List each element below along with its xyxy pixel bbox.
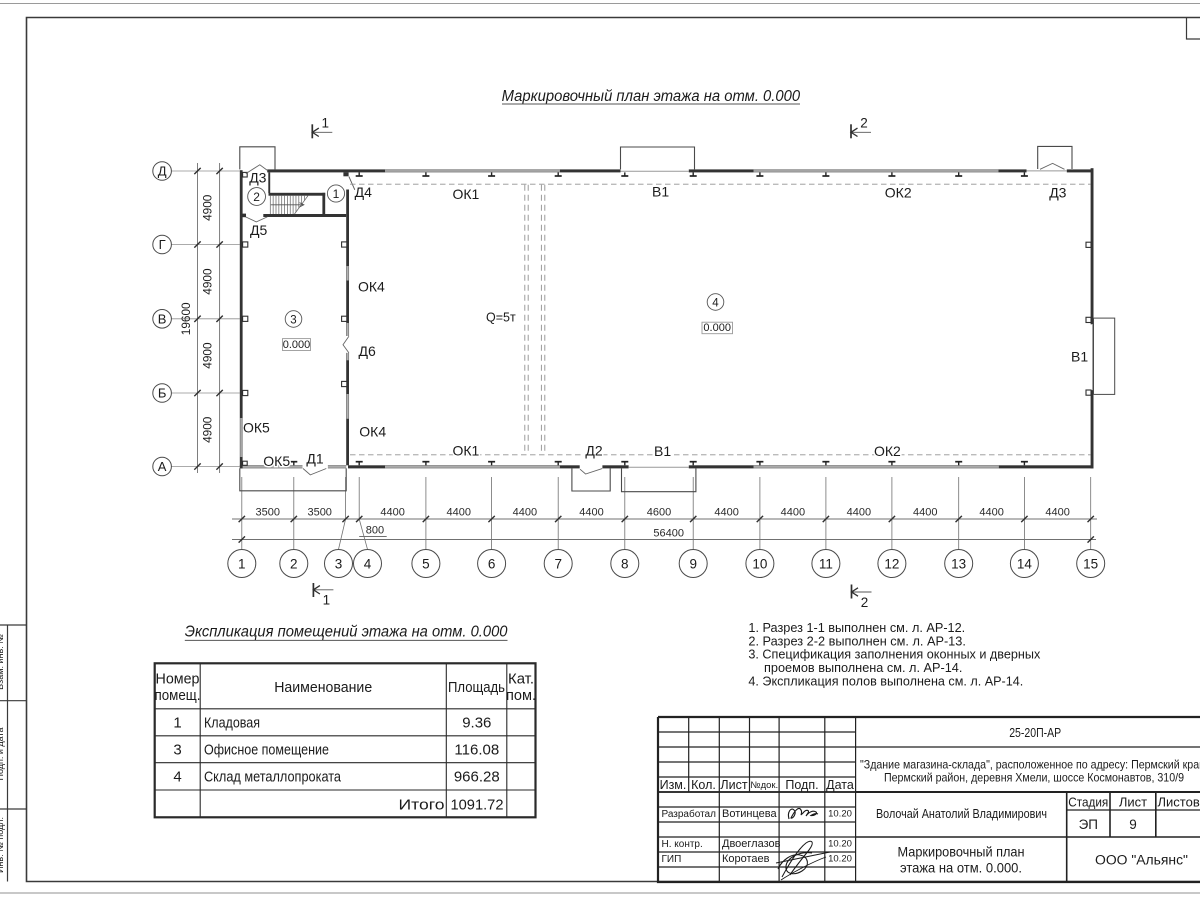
svg-text:Н. контр.: Н. контр. [662, 839, 703, 850]
svg-text:4. Экспликация полов выполнена: 4. Экспликация полов выполнена см. л. АР… [748, 673, 1023, 688]
svg-text:Кат.: Кат. [508, 671, 534, 688]
svg-text:ОК1: ОК1 [453, 186, 480, 202]
svg-text:3: 3 [335, 556, 343, 571]
svg-text:1: 1 [323, 593, 331, 608]
svg-text:Д3: Д3 [249, 170, 266, 186]
svg-text:ОК5: ОК5 [263, 453, 290, 469]
svg-text:Б: Б [158, 386, 167, 401]
svg-text:ОК2: ОК2 [885, 185, 912, 201]
svg-text:ООО "Альянс": ООО "Альянс" [1095, 853, 1188, 868]
svg-text:9: 9 [1129, 817, 1137, 832]
svg-text:Д: Д [158, 164, 167, 179]
svg-text:пом.: пом. [506, 687, 536, 704]
svg-text:1: 1 [238, 556, 246, 571]
svg-text:800: 800 [366, 525, 384, 537]
svg-text:10: 10 [752, 556, 767, 571]
svg-text:7: 7 [554, 556, 562, 571]
svg-text:4: 4 [712, 298, 719, 310]
svg-text:Волочай Анатолий Владимирович: Волочай Анатолий Владимирович [876, 807, 1047, 821]
svg-text:14: 14 [1017, 556, 1033, 571]
svg-text:4900: 4900 [201, 342, 215, 369]
svg-text:3500: 3500 [256, 507, 280, 519]
svg-text:Пермский район, деревня Хмели,: Пермский район, деревня Хмели, шоссе Кос… [884, 771, 1184, 785]
svg-text:0.000: 0.000 [283, 339, 311, 351]
svg-text:1: 1 [173, 715, 181, 732]
svg-text:Лист: Лист [720, 778, 747, 792]
svg-text:12: 12 [884, 556, 899, 571]
svg-text:56400: 56400 [653, 528, 684, 540]
svg-text:Д4: Д4 [355, 184, 372, 200]
svg-text:19600: 19600 [179, 302, 193, 335]
svg-text:4600: 4600 [647, 507, 671, 519]
svg-text:Экспликация помещений этажа на: Экспликация помещений этажа на отм. 0.00… [185, 624, 508, 641]
svg-text:25-20П-АР: 25-20П-АР [1009, 726, 1061, 740]
svg-text:11: 11 [819, 556, 833, 571]
svg-text:"Здание магазина-склада", расп: "Здание магазина-склада", расположенное … [860, 758, 1200, 772]
svg-text:В: В [158, 311, 167, 326]
svg-text:4400: 4400 [1045, 507, 1069, 519]
svg-text:13: 13 [951, 556, 966, 571]
svg-text:Дата: Дата [826, 778, 854, 792]
svg-text:Листов: Листов [1158, 795, 1200, 810]
svg-text:этажа на отм. 0.000.: этажа на отм. 0.000. [900, 860, 1022, 876]
svg-text:4900: 4900 [201, 416, 215, 443]
svg-text:8: 8 [621, 556, 629, 571]
svg-text:0.000: 0.000 [703, 322, 731, 334]
svg-text:Офисное помещение: Офисное помещение [204, 742, 329, 759]
svg-text:4400: 4400 [913, 507, 937, 519]
svg-text:4400: 4400 [781, 507, 805, 519]
svg-text:Кол.: Кол. [691, 778, 716, 792]
svg-text:4400: 4400 [579, 507, 603, 519]
svg-text:ОК5: ОК5 [243, 420, 270, 436]
svg-text:10.20: 10.20 [828, 809, 852, 820]
svg-text:В1: В1 [652, 184, 669, 200]
svg-text:Номер: Номер [156, 671, 200, 688]
svg-text:помещ.: помещ. [155, 687, 201, 704]
svg-text:4400: 4400 [380, 507, 404, 519]
svg-text:Д1: Д1 [306, 451, 323, 467]
svg-text:Площадь: Площадь [448, 679, 505, 696]
svg-text:Взам. инв. №: Взам. инв. № [0, 634, 5, 690]
svg-text:10.20: 10.20 [828, 839, 852, 850]
svg-text:15: 15 [1083, 556, 1098, 571]
svg-text:Лист: Лист [1119, 795, 1147, 810]
svg-text:9.36: 9.36 [462, 715, 491, 732]
svg-text:4: 4 [364, 556, 372, 571]
svg-text:Изм.: Изм. [660, 778, 687, 792]
svg-text:Подп.: Подп. [785, 778, 818, 792]
svg-text:966.28: 966.28 [454, 769, 500, 786]
svg-text:Маркировочный план этажа на от: Маркировочный план этажа на отм. 0.000 [502, 88, 801, 105]
svg-text:1: 1 [322, 116, 330, 131]
svg-text:№док.: №док. [750, 780, 778, 791]
svg-text:ЭП: ЭП [1079, 817, 1098, 832]
svg-text:Маркировочный план: Маркировочный план [898, 844, 1025, 860]
svg-text:Q=5т: Q=5т [486, 311, 516, 325]
svg-text:2: 2 [861, 595, 869, 610]
svg-text:4900: 4900 [201, 268, 215, 295]
svg-text:6: 6 [488, 556, 496, 571]
svg-text:5: 5 [422, 556, 430, 571]
svg-text:ОК1: ОК1 [453, 443, 480, 459]
svg-text:Итого: Итого [399, 797, 445, 814]
svg-text:Склад металлопроката: Склад металлопроката [204, 769, 342, 786]
svg-text:4400: 4400 [447, 507, 471, 519]
svg-text:ОК4: ОК4 [359, 424, 386, 440]
svg-text:В1: В1 [654, 443, 671, 459]
svg-text:Двоеглазов: Двоеглазов [722, 838, 781, 850]
svg-text:А: А [158, 459, 167, 474]
svg-text:1091.72: 1091.72 [451, 797, 504, 814]
svg-text:10.20: 10.20 [828, 854, 852, 865]
svg-text:2: 2 [860, 116, 868, 131]
svg-text:Д5: Д5 [250, 222, 267, 238]
svg-text:Коротаев: Коротаев [722, 853, 770, 865]
svg-text:Вотинцева: Вотинцева [722, 808, 777, 820]
svg-text:4400: 4400 [513, 507, 537, 519]
svg-text:Инв. № подл.: Инв. № подл. [0, 817, 5, 873]
svg-text:3: 3 [173, 742, 181, 759]
svg-text:ГИП: ГИП [662, 854, 682, 865]
svg-text:ОК2: ОК2 [874, 443, 901, 459]
svg-text:4400: 4400 [847, 507, 871, 519]
svg-text:ОК4: ОК4 [358, 279, 385, 295]
svg-text:3500: 3500 [307, 507, 331, 519]
svg-text:В1: В1 [1071, 349, 1088, 365]
svg-text:4900: 4900 [201, 194, 215, 221]
svg-text:Наименование: Наименование [274, 679, 372, 696]
svg-text:3: 3 [290, 315, 296, 327]
svg-text:Подп. и дата: Подп. и дата [0, 727, 5, 780]
svg-text:Разработал: Разработал [662, 808, 717, 820]
svg-text:Д6: Д6 [359, 343, 376, 359]
svg-text:1: 1 [333, 187, 340, 201]
svg-text:Г: Г [159, 237, 166, 252]
svg-text:116.08: 116.08 [454, 742, 499, 759]
svg-text:2: 2 [290, 556, 298, 571]
svg-text:4400: 4400 [714, 507, 738, 519]
svg-text:Стадия: Стадия [1068, 795, 1108, 810]
svg-text:Кладовая: Кладовая [204, 715, 260, 732]
svg-text:4400: 4400 [979, 507, 1003, 519]
svg-text:9: 9 [689, 556, 697, 571]
svg-text:Д2: Д2 [585, 443, 602, 459]
svg-text:2: 2 [253, 190, 260, 204]
svg-text:Д3: Д3 [1049, 185, 1066, 201]
svg-text:4: 4 [173, 769, 181, 786]
